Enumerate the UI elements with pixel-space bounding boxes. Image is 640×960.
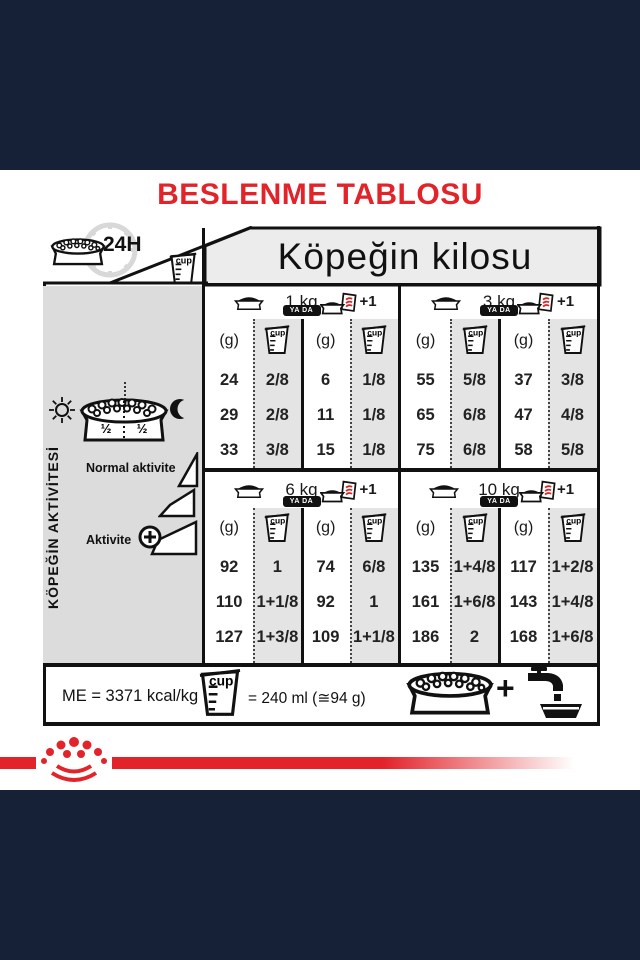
value-cell: 5/8 — [548, 433, 597, 468]
cup-icon-label: cup — [271, 515, 286, 525]
plus-one-label: +1 — [557, 293, 574, 310]
bowl-pouch-icon — [519, 479, 559, 505]
value-cell: 24 — [205, 363, 253, 398]
moon-icon — [168, 396, 196, 423]
cup-icon: cup — [462, 512, 488, 544]
water-tap-icon — [523, 664, 585, 720]
activity-ramp-small-icon — [177, 452, 199, 488]
value-cell: 11 — [302, 398, 350, 433]
bowl-pouch-icon — [320, 479, 360, 505]
value-cell: 6/8 — [450, 433, 499, 468]
top-navy-band — [0, 0, 640, 170]
border-right — [597, 226, 600, 726]
grams-header: (g) — [499, 319, 548, 363]
cup-icon: cup — [264, 512, 290, 544]
grams-header: (g) — [205, 508, 253, 548]
value-cell: 65 — [401, 398, 450, 433]
crown-logo — [36, 735, 112, 787]
plus-one-label: +1 — [557, 481, 574, 498]
value-cell: 3/8 — [253, 433, 301, 468]
plus-sign: + — [496, 670, 515, 707]
me-energy-label: ME = 3371 kcal/kg — [62, 687, 198, 706]
value-cell: 1/8 — [350, 363, 398, 398]
activity-ramp-medium-icon — [158, 487, 196, 518]
weight-group-1kg: 1 kg YA DA +1 (g) (g) cup cup 24 2/8 6 1… — [205, 286, 398, 468]
value-cell: 2/8 — [253, 363, 301, 398]
cup-icon: cup — [560, 324, 586, 356]
or-badge: YA DA — [480, 305, 518, 316]
cup-icon-label: cup — [468, 515, 483, 525]
or-badge: YA DA — [283, 305, 321, 316]
red-stripe-right — [112, 757, 604, 769]
value-cell: 55 — [401, 363, 450, 398]
value-cell: 1+2/8 — [548, 550, 597, 585]
value-cell: 4/8 — [548, 398, 597, 433]
grams-header: (g) — [499, 508, 548, 548]
dog-weight-header: Köpeğin kilosu — [210, 233, 600, 281]
cup-icon-label: cup — [566, 327, 581, 337]
cup-icon: cup — [560, 512, 586, 544]
sidebar-vertical-label: KÖPEĞİN AKTİVİTESİ — [42, 425, 64, 630]
grams-header: (g) — [401, 508, 450, 548]
value-cell: 168 — [499, 620, 548, 655]
value-cell: 1 — [253, 550, 301, 585]
red-stripe-left — [0, 757, 36, 769]
or-badge: YA DA — [283, 496, 321, 507]
cup-icon: cup — [264, 324, 290, 356]
cup-icon-label: cup — [468, 327, 483, 337]
plus-one-label: +1 — [360, 481, 377, 498]
cup-icon-label: cup — [367, 515, 382, 525]
food-bowl-icon-large — [403, 670, 497, 720]
value-cell: 1+1/8 — [350, 620, 398, 655]
value-cell: 117 — [499, 550, 548, 585]
weight-group-10kg: 10 kg YA DA +1 (g) (g) cup cup 135 1+4/8… — [401, 472, 597, 663]
cup-icon-label: cup — [566, 515, 581, 525]
bottom-navy-band — [0, 790, 640, 960]
value-cell: 74 — [302, 550, 350, 585]
value-cell: 58 — [499, 433, 548, 468]
value-cell: 1+1/8 — [253, 585, 301, 620]
value-cell: 33 — [205, 433, 253, 468]
page-title: BESLENME TABLOSU — [0, 178, 640, 212]
value-cell: 29 — [205, 398, 253, 433]
grams-header: (g) — [302, 508, 350, 548]
cup-icon-label: cup — [209, 674, 233, 689]
value-cell: 92 — [302, 585, 350, 620]
value-cell: 2/8 — [253, 398, 301, 433]
value-cell: 1+3/8 — [253, 620, 301, 655]
grams-header: (g) — [302, 319, 350, 363]
bowl-pouch-icon — [517, 291, 557, 317]
cup-icon-large: cup — [198, 668, 242, 718]
value-cell: 1+6/8 — [548, 620, 597, 655]
activity-plus-ramp-icon — [138, 517, 200, 557]
value-cell: 143 — [499, 585, 548, 620]
sun-icon — [48, 396, 76, 424]
half-right-label: ½ — [137, 421, 148, 436]
value-cell: 6 — [302, 363, 350, 398]
cup-icon: cup — [361, 324, 387, 356]
value-cell: 1 — [350, 585, 398, 620]
value-cell: 1+6/8 — [450, 585, 499, 620]
cup-icon-label: cup — [271, 327, 286, 337]
cup-icon: cup — [462, 324, 488, 356]
cup-icon: cup — [169, 251, 197, 286]
half-portion-bowl-icon: ½ ½ — [78, 398, 170, 448]
value-cell: 127 — [205, 620, 253, 655]
value-cell: 75 — [401, 433, 450, 468]
cup-icon-label: cup — [176, 256, 193, 266]
half-left-label: ½ — [101, 421, 112, 436]
value-cell: 161 — [401, 585, 450, 620]
value-cell: 135 — [401, 550, 450, 585]
value-cell: 186 — [401, 620, 450, 655]
weight-group-6kg: 6 kg YA DA +1 (g) (g) cup cup 92 1 74 6/… — [205, 472, 398, 663]
plus-one-label: +1 — [360, 293, 377, 310]
value-cell: 92 — [205, 550, 253, 585]
value-cell: 1+4/8 — [548, 585, 597, 620]
value-cell: 1/8 — [350, 398, 398, 433]
value-cell: 1+4/8 — [450, 550, 499, 585]
border-footer-top — [43, 663, 600, 667]
value-cell: 109 — [302, 620, 350, 655]
weight-group-3kg: 3 kg YA DA +1 (g) (g) cup cup 55 5/8 37 … — [401, 286, 597, 468]
value-cell: 110 — [205, 585, 253, 620]
value-cell: 1/8 — [350, 433, 398, 468]
value-cell: 3/8 — [548, 363, 597, 398]
or-badge: YA DA — [480, 496, 518, 507]
value-cell: 6/8 — [450, 398, 499, 433]
grams-header: (g) — [205, 319, 253, 363]
activity-label: Aktivite — [86, 533, 131, 547]
value-cell: 6/8 — [350, 550, 398, 585]
grams-header: (g) — [401, 319, 450, 363]
value-cell: 5/8 — [450, 363, 499, 398]
value-cell: 47 — [499, 398, 548, 433]
cup-icon-label: cup — [367, 327, 382, 337]
border-footer-bottom — [43, 722, 600, 726]
value-cell: 37 — [499, 363, 548, 398]
bowl-pouch-icon — [320, 291, 360, 317]
cup-volume-label: = 240 ml (≅94 g) — [248, 689, 366, 708]
normal-activity-label: Normal aktivite — [86, 461, 176, 475]
cup-icon: cup — [361, 512, 387, 544]
value-cell: 2 — [450, 620, 499, 655]
value-cell: 15 — [302, 433, 350, 468]
feeding-table-page: BESLENME TABLOSU 24H Köpeğin kilosu cup — [0, 0, 640, 960]
